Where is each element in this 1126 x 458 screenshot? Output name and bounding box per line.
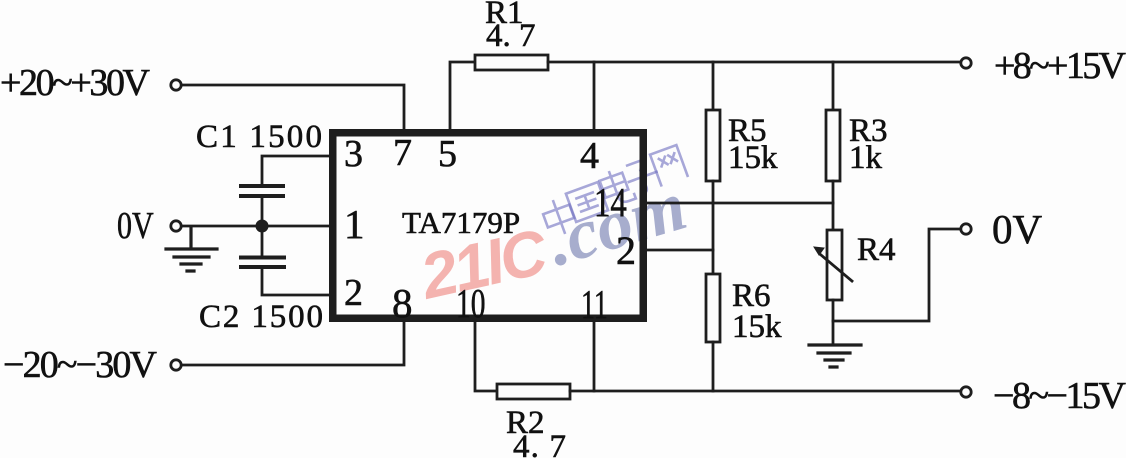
svg-text:R4: R4 [857, 232, 896, 268]
svg-text:0V: 0V [117, 205, 154, 247]
svg-text:0V: 0V [992, 206, 1043, 252]
svg-text:+8~+15V: +8~+15V [994, 45, 1126, 87]
svg-text:5: 5 [438, 133, 457, 175]
svg-text:C1 1500: C1 1500 [196, 119, 322, 155]
svg-text:8: 8 [392, 280, 413, 326]
svg-text:4. 7: 4. 7 [513, 429, 566, 458]
svg-text:14: 14 [594, 181, 627, 226]
svg-text:−8~−15V: −8~−15V [993, 375, 1126, 417]
svg-text:4: 4 [580, 135, 599, 177]
svg-text:7: 7 [393, 132, 412, 174]
svg-text:11: 11 [581, 282, 608, 328]
svg-text:4. 7: 4. 7 [486, 18, 536, 54]
svg-text:2: 2 [344, 272, 363, 314]
svg-text:1: 1 [344, 201, 365, 247]
svg-text:−20~−30V: −20~−30V [3, 344, 158, 386]
svg-text:2: 2 [616, 228, 636, 273]
svg-text:15k: 15k [728, 140, 778, 176]
svg-text:15k: 15k [732, 309, 782, 345]
svg-text:C2 1500: C2 1500 [199, 299, 323, 335]
svg-text:1k: 1k [849, 140, 883, 176]
svg-text:+20~+30V: +20~+30V [0, 62, 151, 104]
svg-text:3: 3 [344, 133, 363, 175]
svg-text:10: 10 [456, 280, 486, 326]
svg-text:TA7179P: TA7179P [402, 205, 520, 240]
